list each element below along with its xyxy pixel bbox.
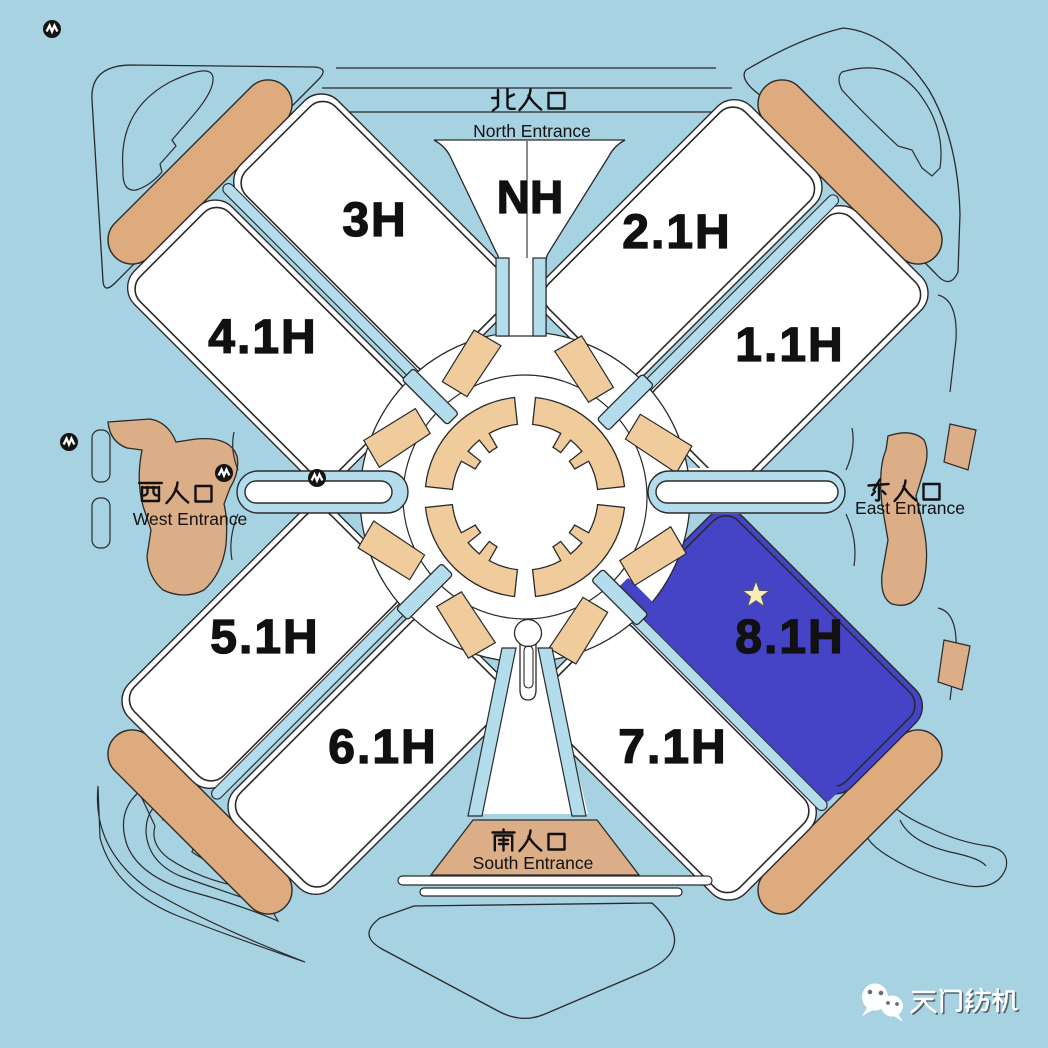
svg-text:South Entrance: South Entrance xyxy=(473,853,594,873)
svg-text:1.1H: 1.1H xyxy=(735,319,844,372)
svg-text:5.1H: 5.1H xyxy=(210,611,319,664)
svg-text:4.1H: 4.1H xyxy=(208,311,317,364)
svg-text:West Entrance: West Entrance xyxy=(133,509,247,529)
svg-text:7.1H: 7.1H xyxy=(618,721,727,774)
svg-text:North Entrance: North Entrance xyxy=(473,121,591,141)
svg-text:NH: NH xyxy=(497,171,563,223)
svg-text:2.1H: 2.1H xyxy=(622,206,731,259)
svg-text:8.1H: 8.1H xyxy=(735,611,844,664)
svg-text:6.1H: 6.1H xyxy=(328,721,437,774)
svg-text:3H: 3H xyxy=(342,194,407,247)
svg-text:East Entrance: East Entrance xyxy=(855,498,965,518)
